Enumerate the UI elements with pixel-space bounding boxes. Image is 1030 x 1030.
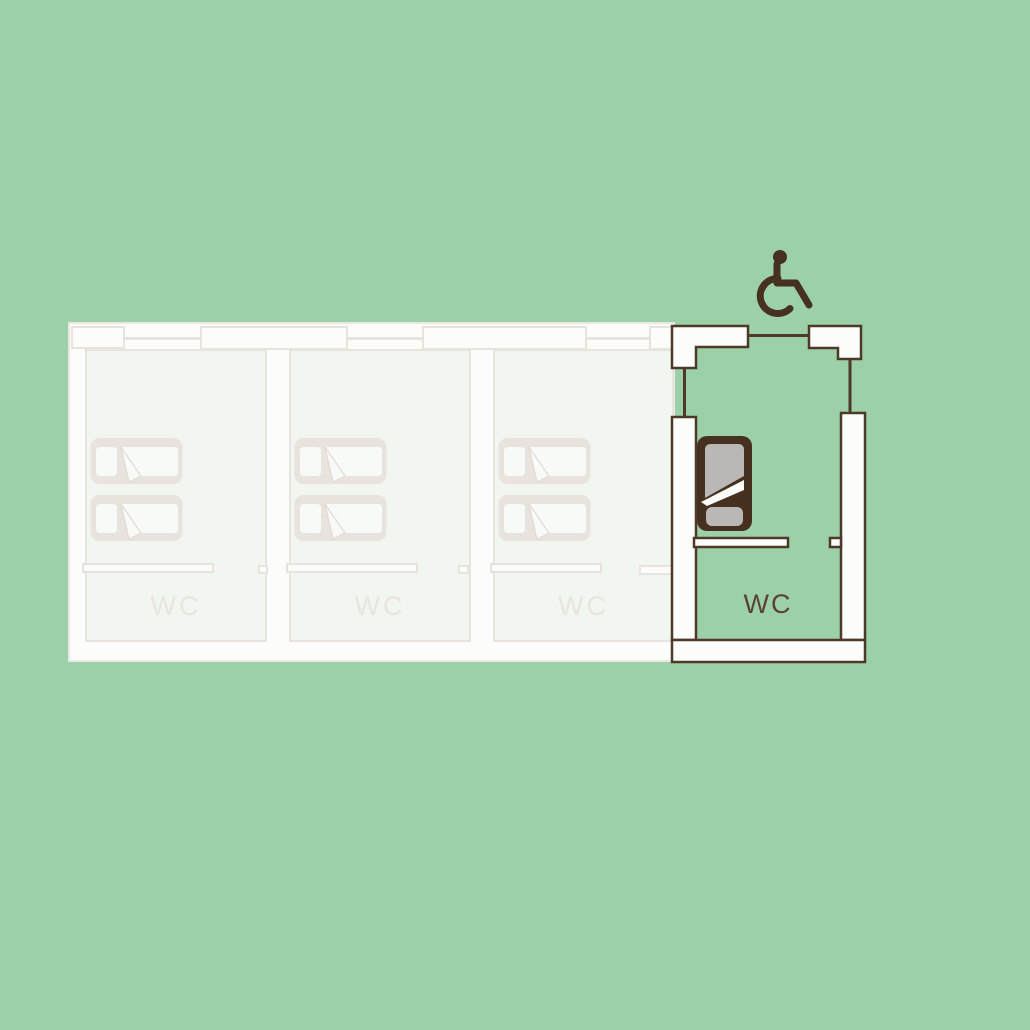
acc-right-wall <box>841 413 865 640</box>
bed-icon <box>90 437 183 485</box>
acc-bottom-wall <box>672 640 865 662</box>
bed-icon <box>294 437 387 485</box>
bed-icon <box>498 437 591 485</box>
faded-wing: WC WC WC <box>68 322 675 662</box>
room-2-door-line <box>348 337 422 340</box>
acc-wc-notch <box>830 538 841 547</box>
room-1-wc-notch <box>258 565 268 574</box>
wheelchair-icon-body <box>777 264 809 305</box>
top-wall-block <box>71 326 125 349</box>
room-3-wc-divider <box>490 563 602 573</box>
acc-wc-divider <box>694 538 788 547</box>
room-2-wc-notch <box>458 565 469 574</box>
acc-top-right-wall <box>809 326 861 359</box>
room-2-wc-divider <box>286 563 418 573</box>
room-1-wc-divider <box>82 563 214 573</box>
top-wall-block <box>422 326 587 350</box>
room-3-door-line <box>587 337 649 340</box>
acc-top-left-wall <box>672 326 748 368</box>
accessible-bed-icon <box>697 436 752 531</box>
wheelchair-icon <box>755 247 815 319</box>
bed-icon <box>90 494 183 542</box>
accessible-wc-label: WC <box>697 590 839 618</box>
top-wall-block <box>200 326 348 350</box>
room-1-door-line <box>125 337 200 340</box>
room-2-wc-label: WC <box>289 592 471 620</box>
bed-icon <box>498 494 591 542</box>
room-3-wc-label: WC <box>493 592 674 620</box>
acc-left-wall <box>672 417 696 640</box>
room-1-wc-label: WC <box>85 592 267 620</box>
floor-plan-illustration: WC WC WC WC <box>0 0 1030 1030</box>
bed-icon <box>294 494 387 542</box>
